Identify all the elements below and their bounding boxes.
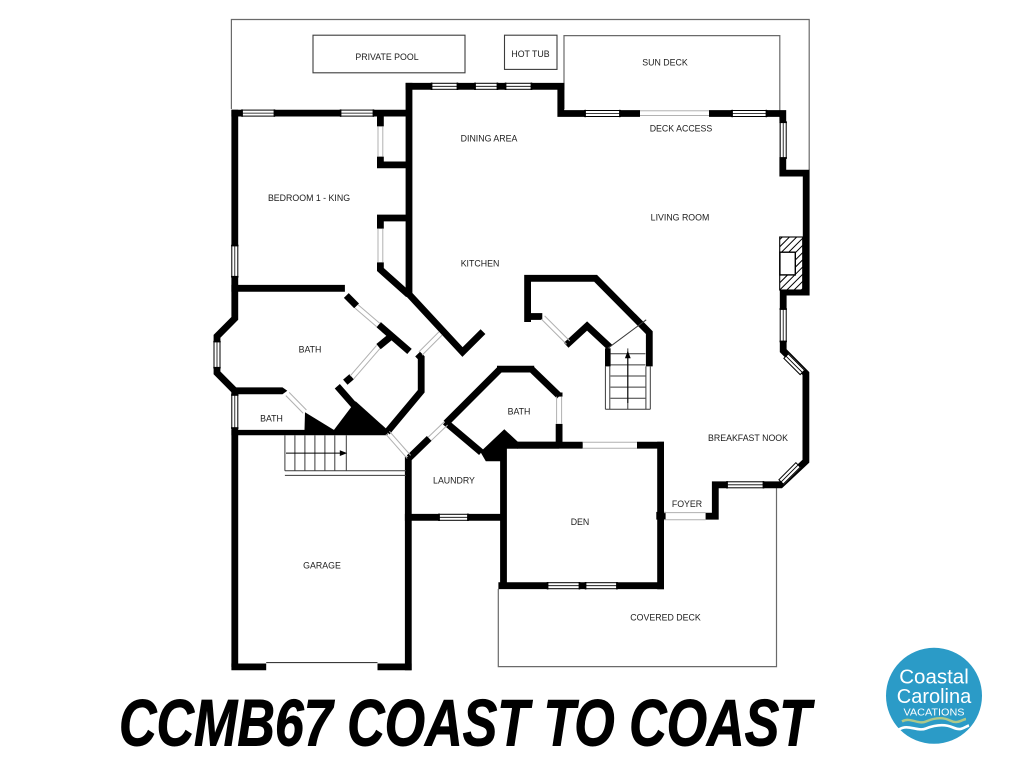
- svg-text:BATH: BATH: [299, 345, 322, 355]
- svg-text:CCMB67 COAST TO COAST: CCMB67 COAST TO COAST: [119, 685, 815, 759]
- svg-text:LIVING ROOM: LIVING ROOM: [651, 213, 710, 223]
- svg-text:COVERED DECK: COVERED DECK: [630, 613, 701, 623]
- svg-text:BATH: BATH: [260, 414, 283, 424]
- svg-text:SUN DECK: SUN DECK: [642, 58, 688, 68]
- svg-text:LAUNDRY: LAUNDRY: [433, 476, 475, 486]
- svg-text:DINING AREA: DINING AREA: [461, 134, 518, 144]
- svg-text:KITCHEN: KITCHEN: [461, 259, 500, 269]
- svg-text:Carolina: Carolina: [897, 685, 972, 708]
- svg-text:HOT TUB: HOT TUB: [511, 49, 549, 59]
- svg-text:GARAGE: GARAGE: [303, 561, 341, 571]
- svg-text:BREAKFAST NOOK: BREAKFAST NOOK: [708, 433, 788, 443]
- svg-text:BATH: BATH: [508, 407, 531, 417]
- svg-text:DECK ACCESS: DECK ACCESS: [650, 124, 713, 134]
- svg-text:DEN: DEN: [571, 517, 590, 527]
- svg-text:PRIVATE POOL: PRIVATE POOL: [355, 52, 418, 62]
- svg-text:BEDROOM 1 - KING: BEDROOM 1 - KING: [268, 193, 350, 203]
- svg-text:VACATIONS: VACATIONS: [904, 707, 965, 718]
- svg-text:FOYER: FOYER: [672, 499, 702, 509]
